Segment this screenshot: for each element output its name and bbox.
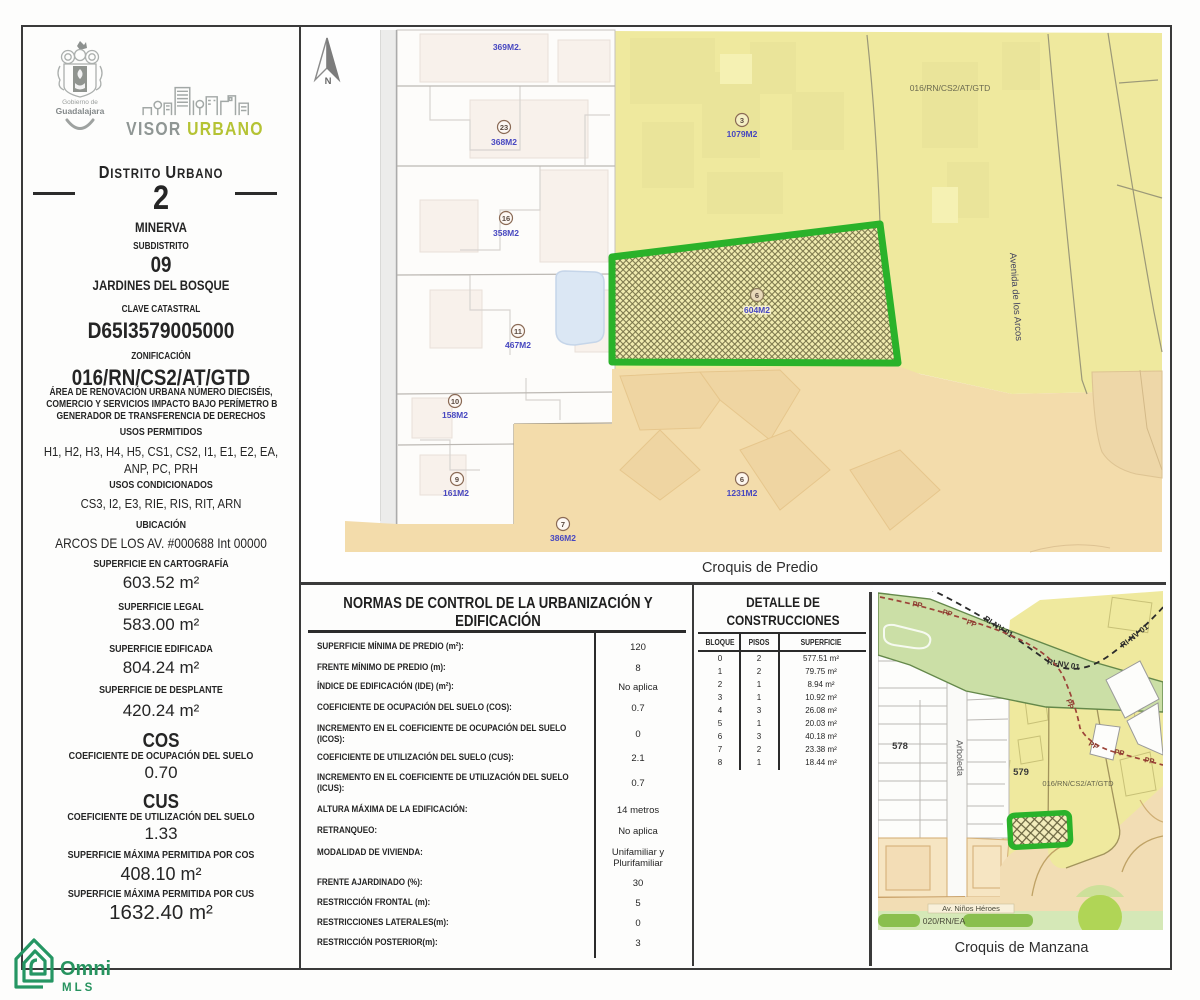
- svg-text:579: 579: [1013, 767, 1029, 778]
- svg-text:11: 11: [514, 327, 522, 336]
- svg-text:7: 7: [561, 520, 565, 529]
- svg-text:Gobierno de: Gobierno de: [62, 99, 98, 106]
- svg-text:368M2: 368M2: [491, 137, 517, 147]
- svg-text:1231M2: 1231M2: [727, 488, 758, 498]
- svg-text:16: 16: [502, 214, 510, 223]
- svg-text:MLS: MLS: [62, 982, 95, 994]
- svg-text:386M2: 386M2: [550, 533, 576, 543]
- svg-text:23: 23: [500, 123, 508, 132]
- svg-text:020/RN/EA: 020/RN/EA: [923, 916, 966, 926]
- svg-text:016/RN/CS2/AT/GTD: 016/RN/CS2/AT/GTD: [1042, 779, 1114, 788]
- svg-text:6: 6: [755, 291, 759, 300]
- svg-text:N: N: [325, 76, 332, 87]
- svg-text:158M2: 158M2: [442, 410, 468, 420]
- svg-text:Omni: Omni: [60, 958, 111, 980]
- svg-text:6: 6: [740, 475, 744, 484]
- svg-text:Av. Niños Héroes: Av. Niños Héroes: [942, 904, 1000, 913]
- svg-text:Guadalajara: Guadalajara: [56, 106, 105, 116]
- svg-text:369M2.: 369M2.: [493, 42, 521, 52]
- svg-text:358M2: 358M2: [493, 228, 519, 238]
- svg-text:016/RN/CS2/AT/GTD: 016/RN/CS2/AT/GTD: [910, 83, 991, 93]
- svg-text:1079M2: 1079M2: [727, 129, 758, 139]
- svg-text:9: 9: [455, 475, 459, 484]
- svg-text:578: 578: [892, 741, 908, 752]
- svg-text:Arboleda: Arboleda: [955, 740, 966, 776]
- svg-text:161M2: 161M2: [443, 488, 469, 498]
- svg-text:467M2: 467M2: [505, 340, 531, 350]
- svg-text:3: 3: [740, 116, 744, 125]
- svg-text:604M2: 604M2: [744, 305, 770, 315]
- svg-text:10: 10: [451, 397, 459, 406]
